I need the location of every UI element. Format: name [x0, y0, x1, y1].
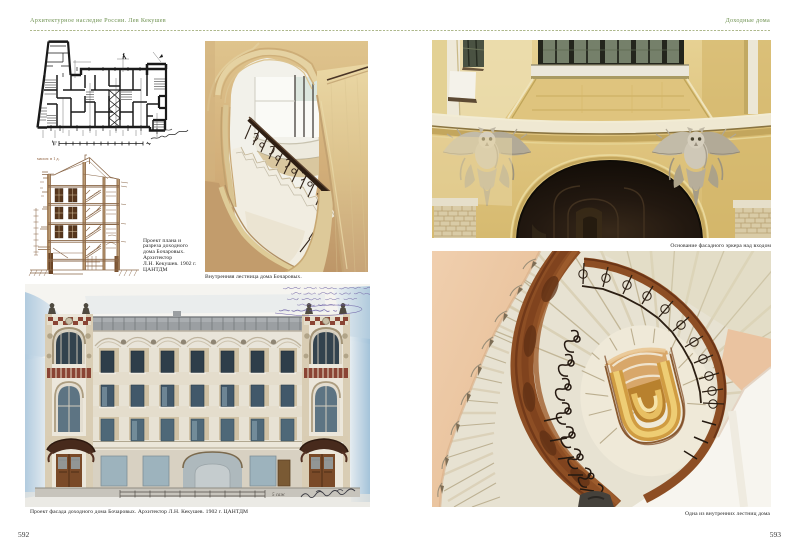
svg-text:масшт. в 1 д.: масшт. в 1 д.: [37, 156, 60, 161]
svg-text:5 саж: 5 саж: [272, 493, 285, 498]
